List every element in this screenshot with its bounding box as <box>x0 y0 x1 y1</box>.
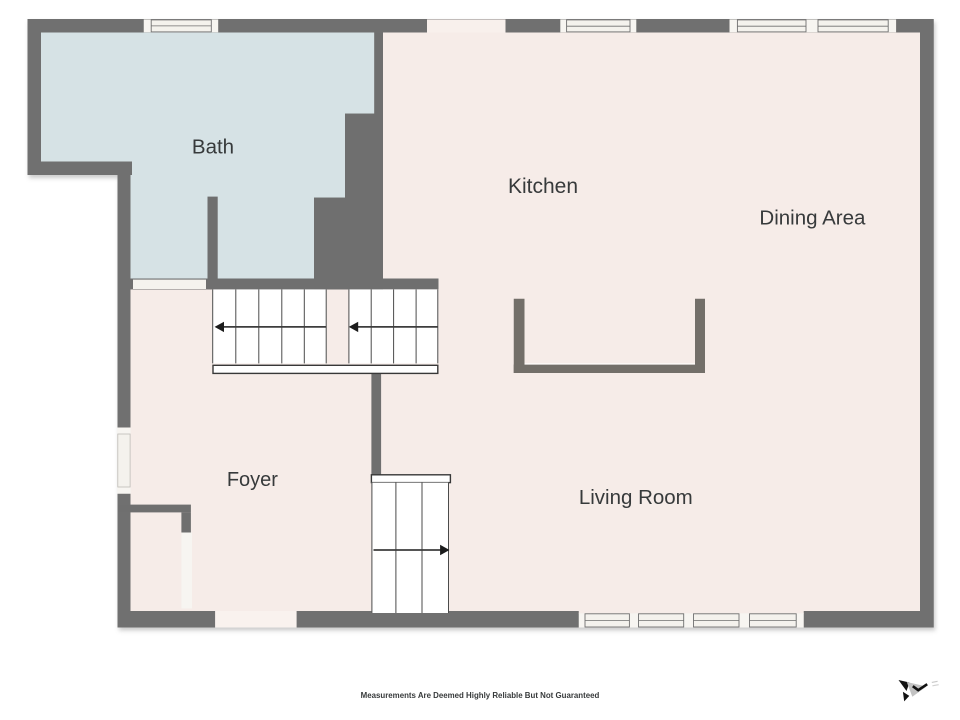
svg-text:Dining Area: Dining Area <box>759 207 866 230</box>
svg-text:Bath: Bath <box>192 136 234 159</box>
svg-text:Measurements Are Deemed Highly: Measurements Are Deemed Highly Reliable … <box>361 691 600 700</box>
svg-text:Foyer: Foyer <box>227 469 278 491</box>
svg-text:Living Room: Living Room <box>579 486 693 509</box>
svg-text:Kitchen: Kitchen <box>508 175 578 198</box>
